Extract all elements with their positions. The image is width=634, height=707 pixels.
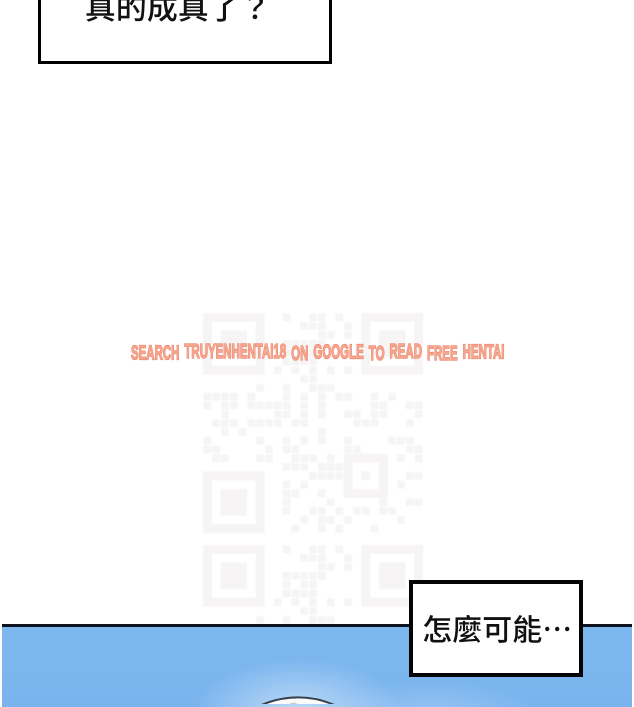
svg-text:FREE: FREE	[427, 343, 458, 365]
svg-text:ON: ON	[291, 343, 308, 365]
svg-text:TO: TO	[369, 343, 385, 365]
svg-text:TRUYENHENTAI18: TRUYENHENTAI18	[184, 341, 286, 363]
svg-text:HENTAI: HENTAI	[463, 342, 505, 364]
svg-text:GOOGLE: GOOGLE	[313, 341, 363, 363]
svg-text:SEARCH: SEARCH	[131, 343, 179, 365]
svg-text:READ: READ	[390, 341, 423, 363]
